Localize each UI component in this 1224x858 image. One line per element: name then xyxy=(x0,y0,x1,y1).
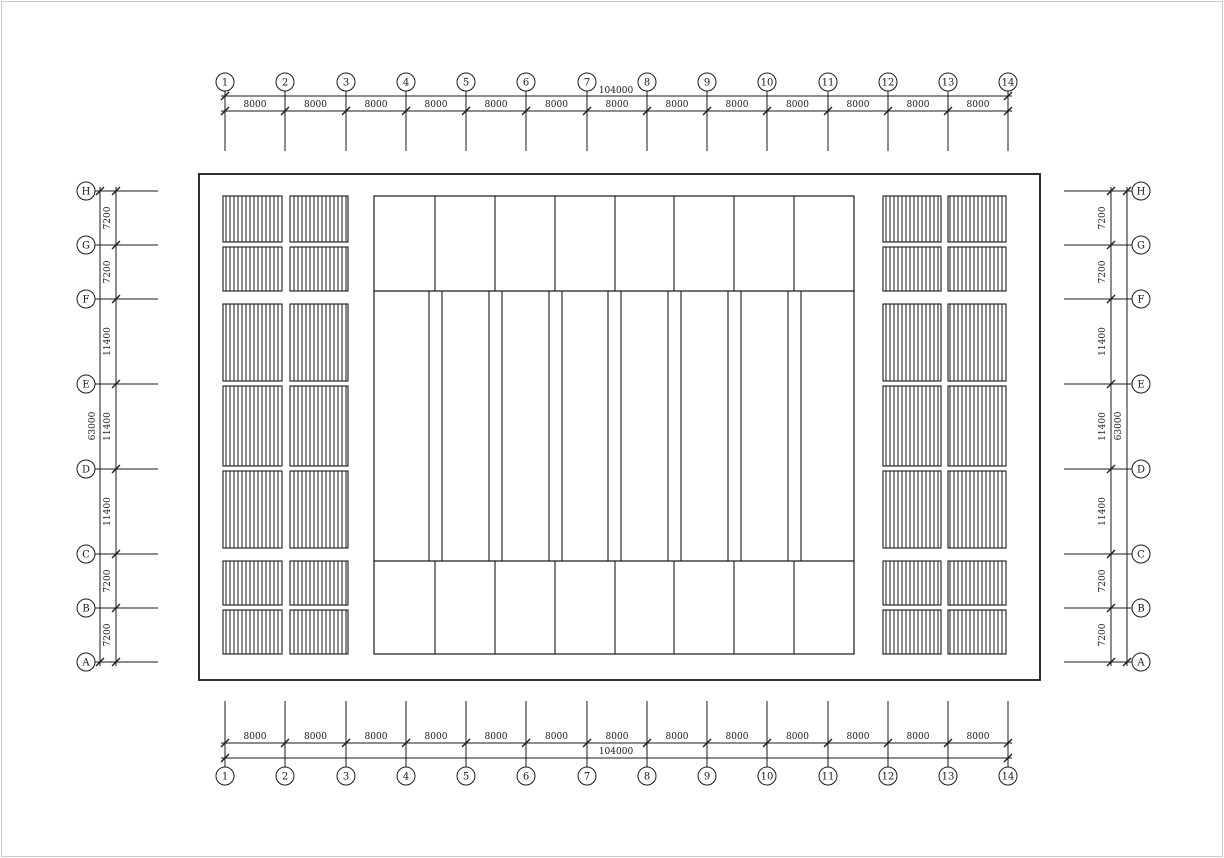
hatched-panel xyxy=(290,196,348,242)
bay-dimension-label: 11400 xyxy=(103,497,113,526)
hatched-panel xyxy=(223,386,282,466)
column-grid-bubble-top-8-label: 8 xyxy=(644,78,650,89)
hatched-panel xyxy=(883,196,941,242)
row-grid-bubble-right-F-label: F xyxy=(1138,295,1145,306)
bay-dimension-label: 7200 xyxy=(103,206,113,229)
row-grid-bubble-left-D-label: D xyxy=(82,465,90,476)
hatched-panel xyxy=(223,196,282,242)
hatched-panel xyxy=(948,561,1006,605)
bay-dimension-label: 8000 xyxy=(967,100,990,110)
column-grid-bubble-bottom-2-label: 2 xyxy=(282,772,288,783)
bay-dimension-label: 8000 xyxy=(967,732,990,742)
column-grid-bubble-top-14-label: 14 xyxy=(1002,78,1015,89)
hatched-panel xyxy=(290,386,348,466)
bay-dimension-label: 8000 xyxy=(726,732,749,742)
column-grid-bubble-bottom-13-label: 13 xyxy=(942,772,955,783)
bay-dimension-label: 8000 xyxy=(244,732,267,742)
bay-dimension-label: 8000 xyxy=(485,100,508,110)
bay-dimension-label: 11400 xyxy=(103,412,113,441)
column-grid-bubble-bottom-1-label: 1 xyxy=(222,772,228,783)
drawing-frame: 1234567891011121314800080008000800080008… xyxy=(1,1,1223,857)
column-grid-bubble-bottom-12-label: 12 xyxy=(882,772,895,783)
hatched-panel xyxy=(290,610,348,654)
bay-dimension-label: 8000 xyxy=(847,100,870,110)
column-grid-bubble-top-11-label: 11 xyxy=(822,78,835,89)
bay-dimension-label: 8000 xyxy=(244,100,267,110)
column-grid-bubble-bottom-9-label: 9 xyxy=(704,772,710,783)
bay-dimension-label: 7200 xyxy=(1098,206,1108,229)
row-grid-bubble-left-C-label: C xyxy=(82,550,90,561)
row-grid-bubble-right-E-label: E xyxy=(1137,380,1144,391)
hatched-panel xyxy=(223,610,282,654)
row-grid-bubble-left-H-label: H xyxy=(82,187,91,198)
hatched-panel xyxy=(948,247,1006,291)
bay-dimension-label: 7200 xyxy=(1098,623,1108,646)
column-grid-bubble-top-12-label: 12 xyxy=(882,78,895,89)
bay-dimension-label: 8000 xyxy=(666,732,689,742)
bay-dimension-label: 8000 xyxy=(666,100,689,110)
column-grid-bubble-bottom-6-label: 6 xyxy=(523,772,529,783)
column-grid-bubble-top-3-label: 3 xyxy=(343,78,349,89)
column-grid-bubble-bottom-4-label: 4 xyxy=(403,772,409,783)
column-grid-bubble-top-6-label: 6 xyxy=(523,78,529,89)
row-grid-bubble-right-H-label: H xyxy=(1137,187,1146,198)
bay-dimension-label: 7200 xyxy=(103,623,113,646)
hatched-panel xyxy=(883,561,941,605)
hatched-panel xyxy=(223,471,282,548)
row-grid-bubble-left-F-label: F xyxy=(83,295,90,306)
row-grid-bubble-right-D-label: D xyxy=(1137,465,1145,476)
bay-dimension-label: 8000 xyxy=(545,100,568,110)
bay-dimension-label: 11400 xyxy=(103,327,113,356)
column-grid-bubble-top-5-label: 5 xyxy=(463,78,469,89)
hatched-panel xyxy=(883,247,941,291)
floor-plan-canvas: 1234567891011121314800080008000800080008… xyxy=(2,2,1222,856)
bay-dimension-label: 11400 xyxy=(1098,412,1108,441)
column-grid-bubble-bottom-5-label: 5 xyxy=(463,772,469,783)
center-roof-outline xyxy=(374,196,854,654)
overall-dimension-label: 104000 xyxy=(599,747,634,757)
hatched-panel xyxy=(290,304,348,381)
bay-dimension-label: 11400 xyxy=(1098,497,1108,526)
hatched-panel xyxy=(223,304,282,381)
row-grid-bubble-left-G-label: G xyxy=(82,241,90,252)
bay-dimension-label: 8000 xyxy=(425,732,448,742)
column-grid-bubble-bottom-10-label: 10 xyxy=(761,772,774,783)
column-grid-bubble-top-2-label: 2 xyxy=(282,78,288,89)
bay-dimension-label: 11400 xyxy=(1098,327,1108,356)
hatched-panel xyxy=(290,561,348,605)
hatched-panel xyxy=(883,304,941,381)
hatched-panel xyxy=(883,386,941,466)
hatched-panel xyxy=(948,386,1006,466)
column-grid-bubble-bottom-7-label: 7 xyxy=(584,772,590,783)
bay-dimension-label: 8000 xyxy=(545,732,568,742)
hatched-panel xyxy=(290,471,348,548)
row-grid-bubble-right-A-label: A xyxy=(1136,658,1145,669)
column-grid-bubble-top-7-label: 7 xyxy=(584,78,590,89)
row-grid-bubble-right-B-label: B xyxy=(1137,604,1144,615)
column-grid-bubble-bottom-3-label: 3 xyxy=(343,772,349,783)
bay-dimension-label: 8000 xyxy=(365,100,388,110)
hatched-panel xyxy=(948,196,1006,242)
column-grid-bubble-top-1-label: 1 xyxy=(222,78,228,89)
bay-dimension-label: 8000 xyxy=(907,732,930,742)
hatched-panel xyxy=(883,610,941,654)
hatched-panel xyxy=(883,471,941,548)
hatched-panel xyxy=(948,304,1006,381)
bay-dimension-label: 8000 xyxy=(425,100,448,110)
row-grid-bubble-right-C-label: C xyxy=(1137,550,1145,561)
bay-dimension-label: 8000 xyxy=(786,732,809,742)
column-grid-bubble-bottom-8-label: 8 xyxy=(644,772,650,783)
hatched-panel xyxy=(223,247,282,291)
column-grid-bubble-top-9-label: 9 xyxy=(704,78,710,89)
overall-dimension-label: 104000 xyxy=(599,86,634,96)
bay-dimension-label: 8000 xyxy=(847,732,870,742)
bay-dimension-label: 7200 xyxy=(103,260,113,283)
row-grid-bubble-left-B-label: B xyxy=(82,604,89,615)
overall-dimension-label: 63000 xyxy=(88,411,98,440)
bay-dimension-label: 8000 xyxy=(485,732,508,742)
column-grid-bubble-top-13-label: 13 xyxy=(942,78,955,89)
hatched-panel xyxy=(948,471,1006,548)
hatched-panel xyxy=(948,610,1006,654)
bay-dimension-label: 8000 xyxy=(606,732,629,742)
column-grid-bubble-bottom-14-label: 14 xyxy=(1002,772,1015,783)
overall-dimension-label: 63000 xyxy=(1114,411,1124,440)
bay-dimension-label: 7200 xyxy=(1098,260,1108,283)
bay-dimension-label: 7200 xyxy=(1098,569,1108,592)
bay-dimension-label: 8000 xyxy=(786,100,809,110)
row-grid-bubble-left-A-label: A xyxy=(81,658,90,669)
column-grid-bubble-top-10-label: 10 xyxy=(761,78,774,89)
bay-dimension-label: 8000 xyxy=(365,732,388,742)
bay-dimension-label: 8000 xyxy=(606,100,629,110)
bay-dimension-label: 8000 xyxy=(907,100,930,110)
row-grid-bubble-left-E-label: E xyxy=(82,380,89,391)
row-grid-bubble-right-G-label: G xyxy=(1137,241,1145,252)
bay-dimension-label: 8000 xyxy=(726,100,749,110)
hatched-panel xyxy=(223,561,282,605)
column-grid-bubble-top-4-label: 4 xyxy=(403,78,409,89)
bay-dimension-label: 8000 xyxy=(304,100,327,110)
bay-dimension-label: 8000 xyxy=(304,732,327,742)
hatched-panel xyxy=(290,247,348,291)
cad-floor-plan-page: 1234567891011121314800080008000800080008… xyxy=(0,0,1224,858)
bay-dimension-label: 7200 xyxy=(103,569,113,592)
column-grid-bubble-bottom-11-label: 11 xyxy=(822,772,835,783)
